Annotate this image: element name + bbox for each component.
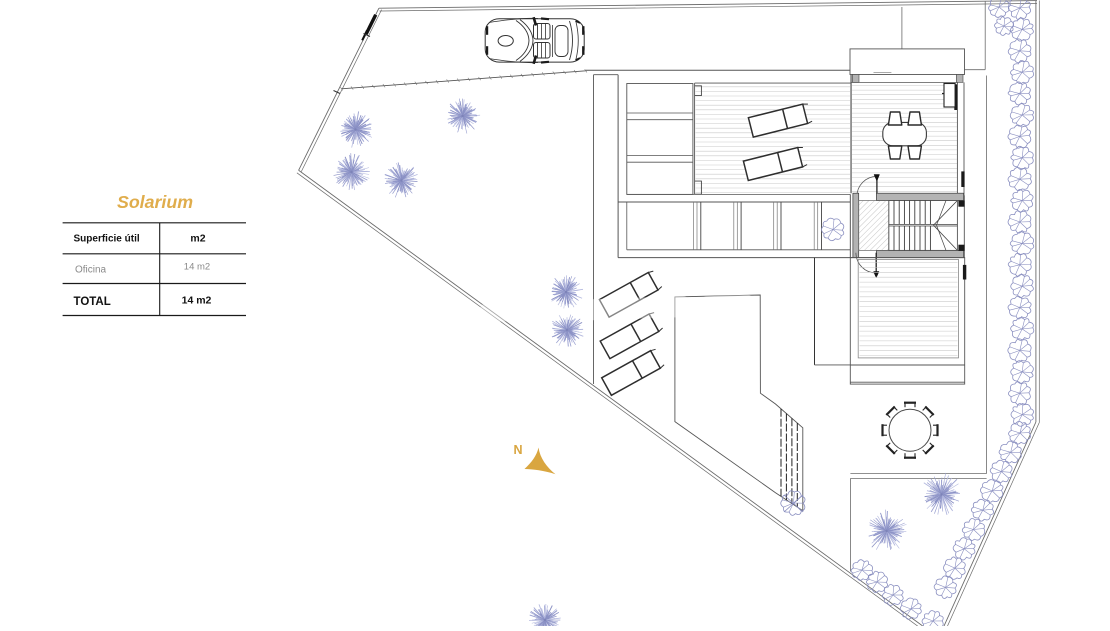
svg-text:m2: m2 xyxy=(190,233,205,245)
svg-text:N: N xyxy=(513,443,522,457)
svg-text:Superficie útil: Superficie útil xyxy=(74,234,140,245)
svg-text:14 m2: 14 m2 xyxy=(184,262,210,273)
svg-text:14 m2: 14 m2 xyxy=(182,295,212,307)
svg-text:Solarium: Solarium xyxy=(117,192,193,212)
svg-text:Oficina: Oficina xyxy=(75,265,107,276)
svg-text:TOTAL: TOTAL xyxy=(74,296,111,308)
